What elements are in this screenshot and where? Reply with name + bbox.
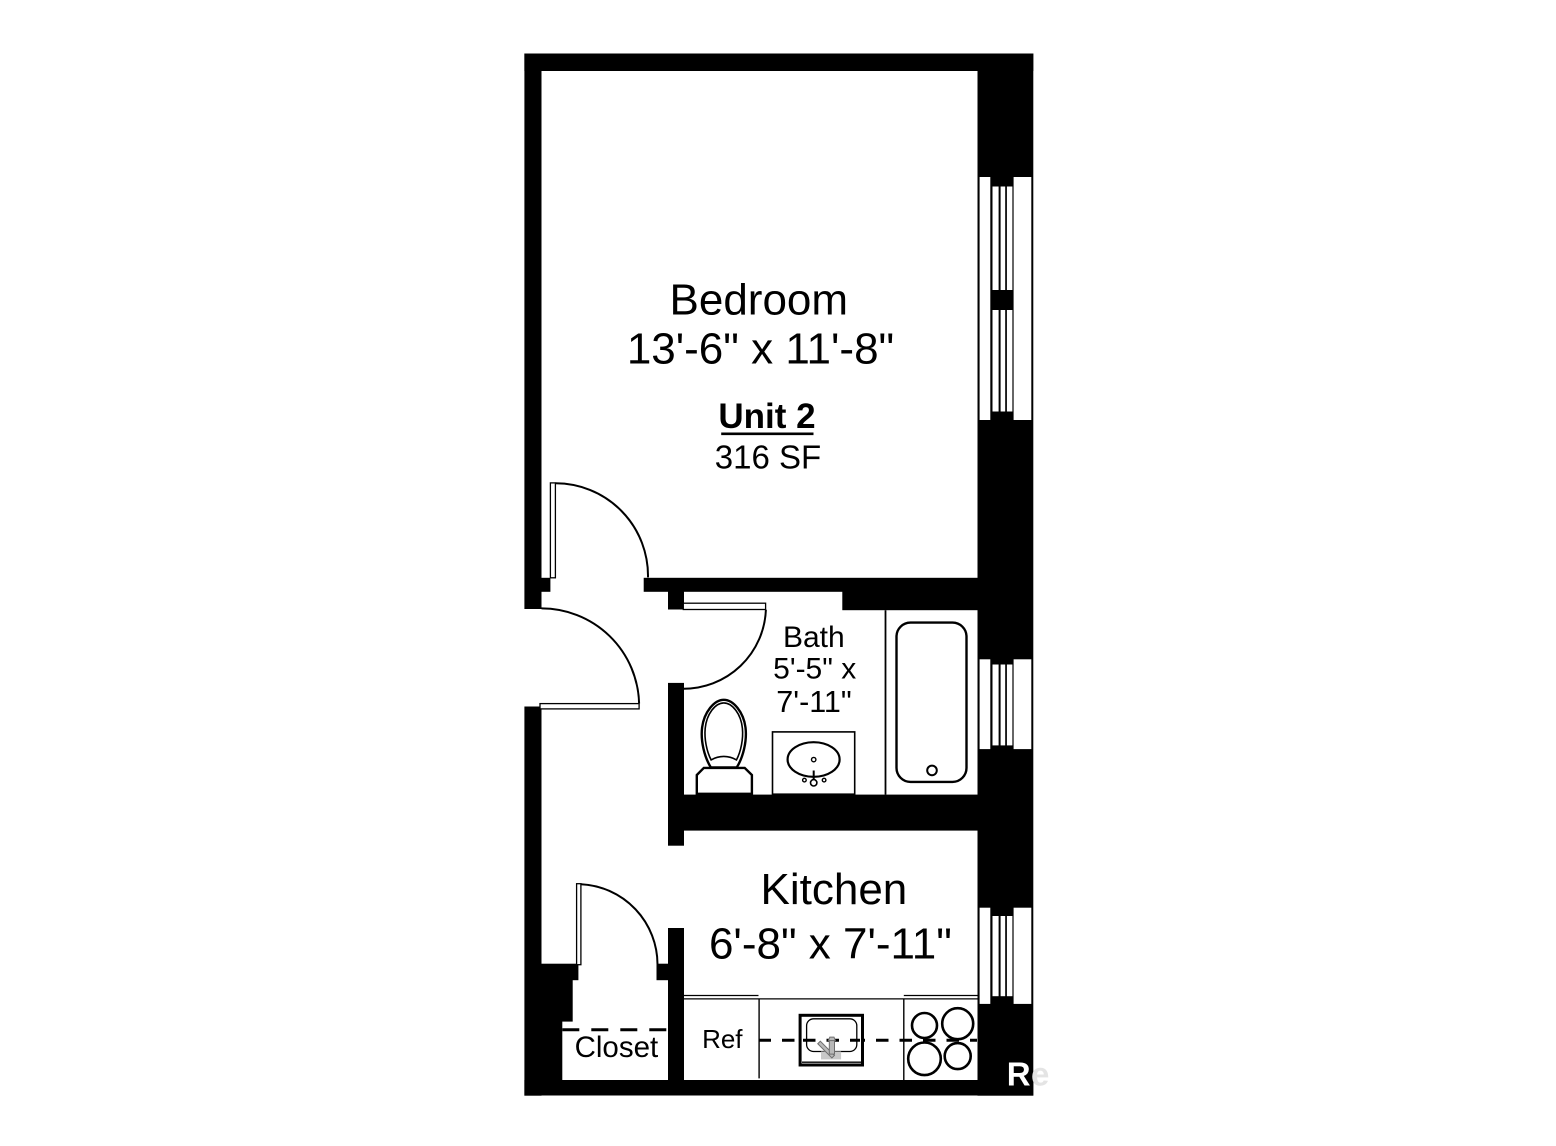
- svg-text:5'-5" x: 5'-5" x: [773, 653, 856, 686]
- svg-text:Bedroom: Bedroom: [670, 276, 849, 325]
- svg-text:7'-11": 7'-11": [776, 685, 851, 719]
- svg-text:6'-8" x 7'-11": 6'-8" x 7'-11": [709, 920, 952, 969]
- svg-text:Ref: Ref: [702, 1024, 743, 1054]
- svg-text:Bath: Bath: [783, 621, 845, 654]
- svg-text:Closet: Closet: [575, 1031, 659, 1064]
- svg-text:13'-6" x 11'-8": 13'-6" x 11'-8": [627, 325, 894, 374]
- svg-text:e: e: [1031, 1056, 1049, 1093]
- svg-text:Kitchen: Kitchen: [761, 865, 908, 914]
- svg-text:Unit 2: Unit 2: [718, 397, 815, 436]
- svg-text:R: R: [1007, 1056, 1031, 1093]
- svg-text:316 SF: 316 SF: [715, 439, 821, 476]
